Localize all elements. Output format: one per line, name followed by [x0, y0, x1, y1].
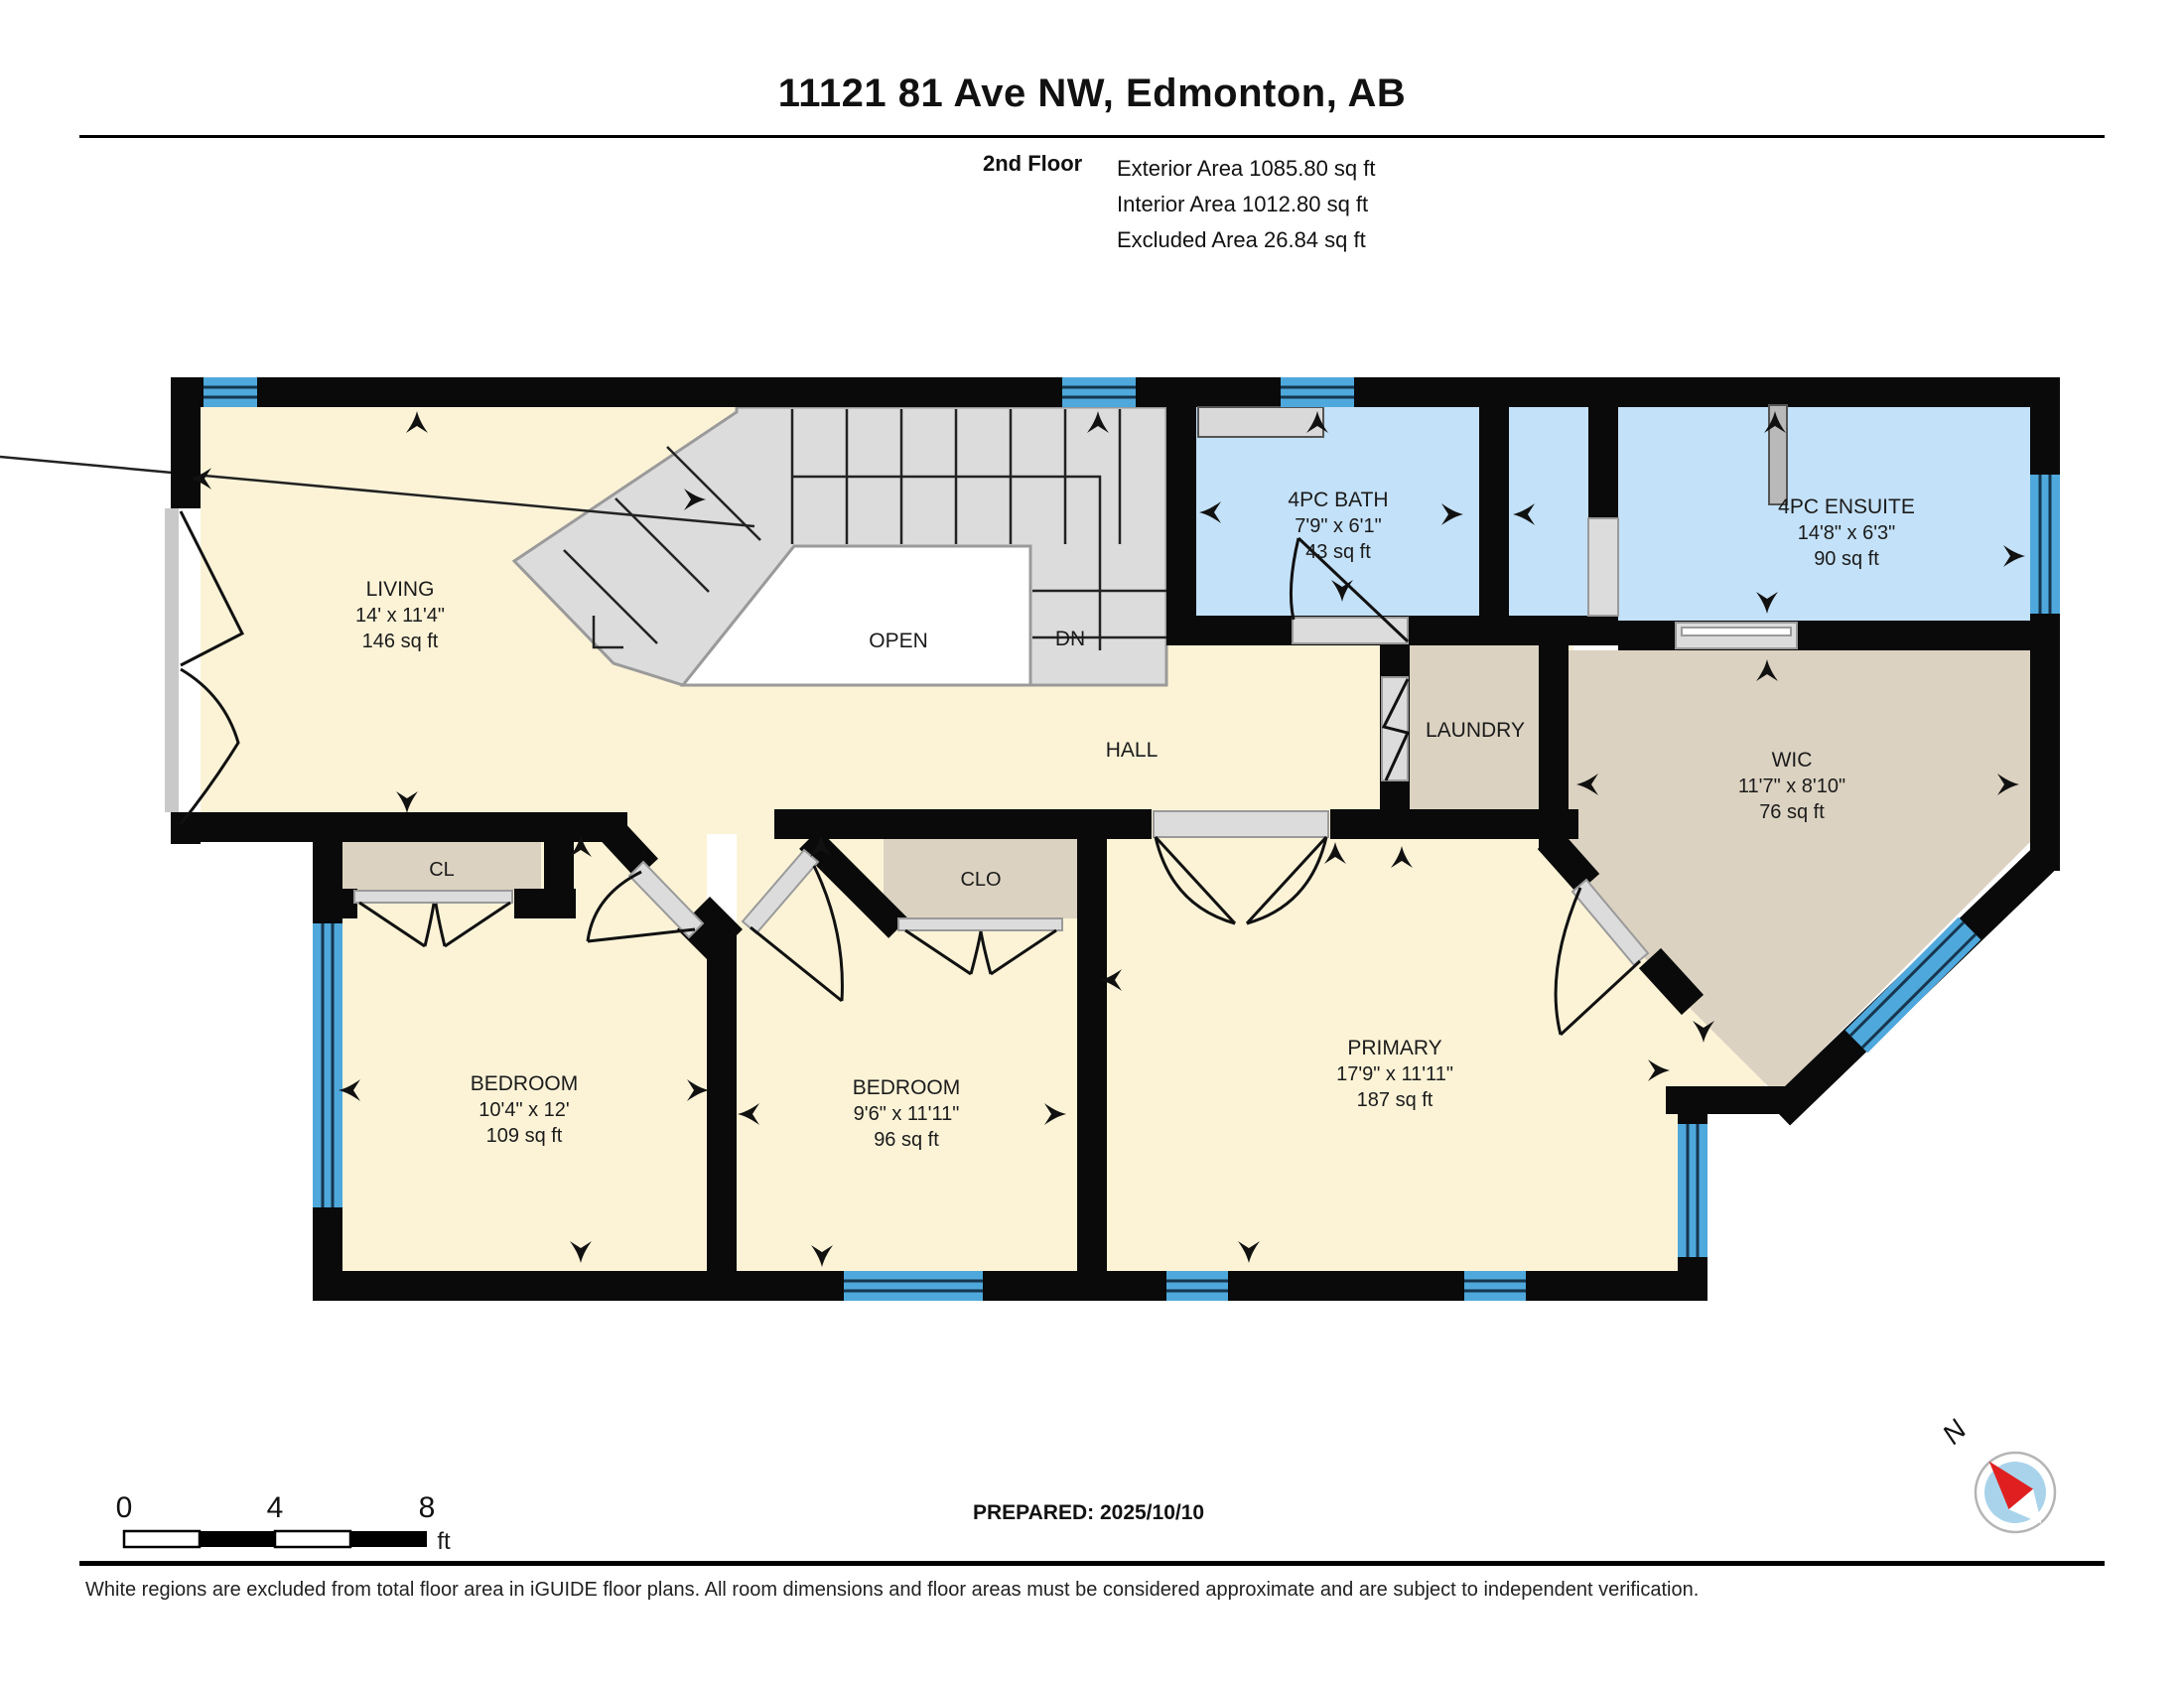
scale-bar: ft 0 4 8 [116, 1491, 451, 1555]
clo-label: CLO [960, 869, 1001, 891]
wic-label: WIC [1772, 749, 1813, 772]
living-dims: 14' x 11'4" [355, 605, 445, 627]
compass-icon: N [1936, 1413, 2055, 1533]
laundry-label: LAUNDRY [1426, 719, 1525, 742]
room-wc [1509, 405, 1590, 618]
bedroom2-label: BEDROOM [853, 1076, 961, 1099]
ensuite-dims: 14'8" x 6'3" [1798, 522, 1896, 544]
bath-area: 43 sq ft [1305, 541, 1371, 563]
wic-dims: 11'7" x 8'10" [1738, 775, 1845, 797]
footer-divider [79, 1561, 2105, 1566]
compass-north-label: N [1936, 1413, 1973, 1450]
hall-label: HALL [1106, 739, 1159, 762]
wic-area: 76 sq ft [1759, 801, 1825, 823]
bedroom2-area: 96 sq ft [874, 1129, 939, 1151]
bedroom2-dims: 9'6" x 11'11" [854, 1103, 960, 1125]
bath-dims: 7'9" x 6'1" [1295, 515, 1381, 537]
primary-dims: 17'9" x 11'11" [1336, 1063, 1453, 1085]
bedroom1-dims: 10'4" x 12' [478, 1099, 569, 1121]
bedroom1-area: 109 sq ft [486, 1125, 563, 1147]
dn-label: DN [1055, 628, 1085, 650]
primary-label: PRIMARY [1347, 1037, 1441, 1059]
cl-label: CL [429, 859, 455, 881]
ensuite-area: 90 sq ft [1814, 548, 1879, 570]
bedroom1-label: BEDROOM [471, 1072, 579, 1095]
living-area: 146 sq ft [362, 631, 439, 652]
scale-tick-8: 8 [419, 1491, 436, 1524]
ensuite-label: 4PC ENSUITE [1778, 495, 1915, 518]
living-label: LIVING [366, 578, 435, 601]
bath-label: 4PC BATH [1288, 489, 1388, 511]
floorplan-page: 11121 81 Ave NW, Edmonton, AB 2nd Floor … [0, 0, 2184, 1688]
scale-unit: ft [437, 1528, 451, 1555]
scale-tick-0: 0 [116, 1491, 133, 1524]
disclaimer-text: White regions are excluded from total fl… [85, 1579, 1699, 1602]
floorplan-drawing: LIVING 14' x 11'4" 146 sq ft OPEN DN HAL… [0, 0, 2184, 1688]
scale-tick-4: 4 [267, 1491, 284, 1524]
prepared-date: PREPARED: 2025/10/10 [973, 1501, 1204, 1525]
open-label: OPEN [869, 630, 928, 652]
primary-area: 187 sq ft [1357, 1089, 1433, 1111]
